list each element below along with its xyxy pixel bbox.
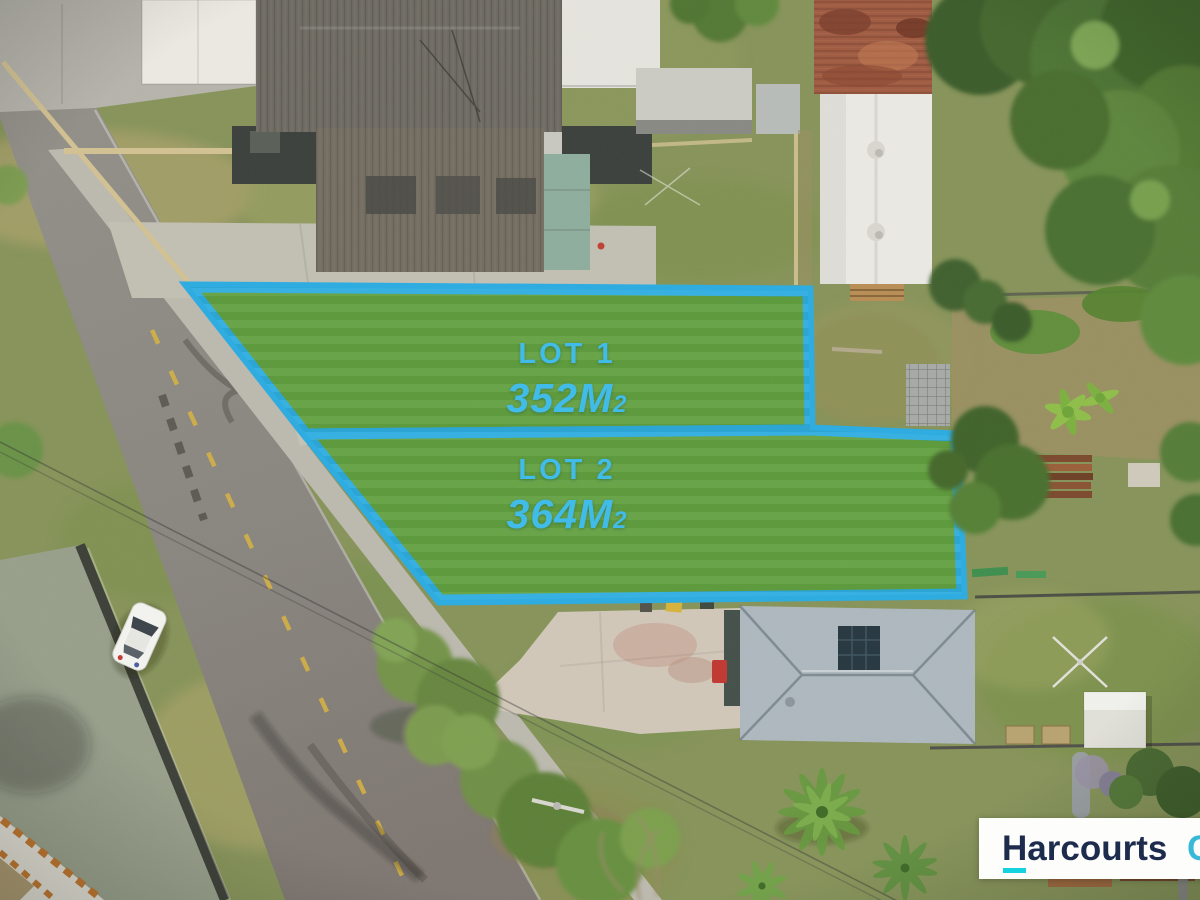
brand-name: Harcourts [1002, 829, 1167, 869]
aerial-photo: LOT 1 352M2 LOT 2 364M2 Harcourts C [0, 0, 1200, 900]
harcourts-logo: Harcourts C [979, 818, 1200, 879]
brand-underline [1003, 868, 1026, 873]
brand-suffix: C [1187, 829, 1200, 869]
aerial-scene [0, 0, 1200, 900]
vignette [0, 0, 1200, 900]
